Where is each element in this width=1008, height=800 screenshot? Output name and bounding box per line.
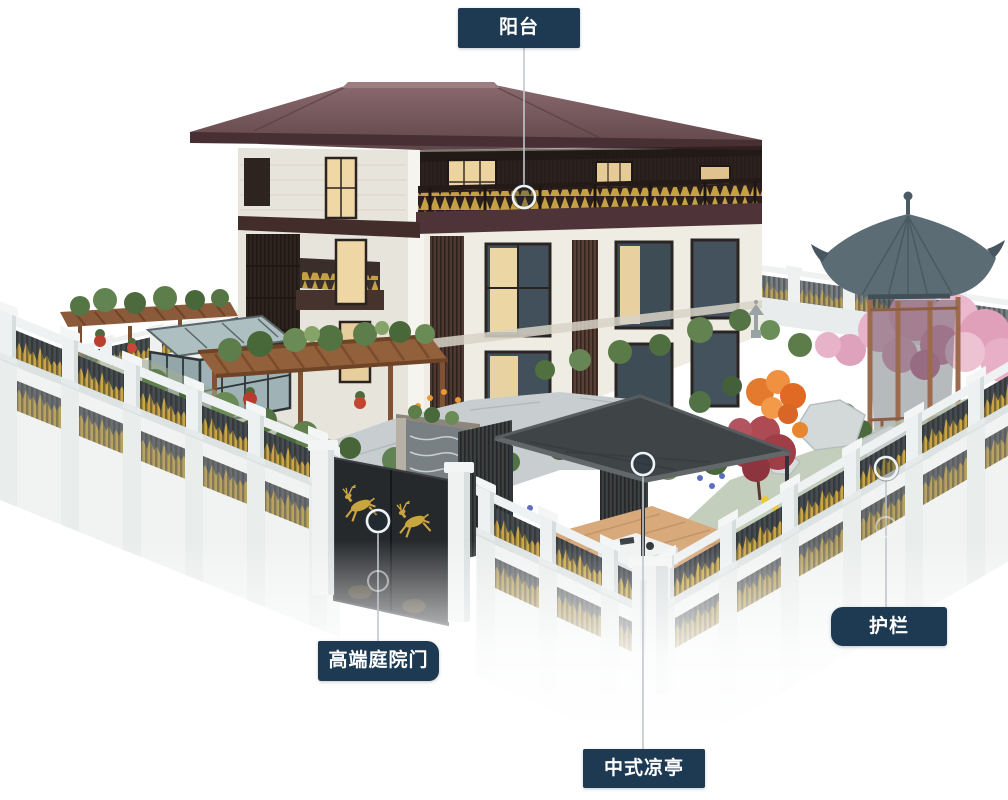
annotated-villa-render: 阳台 高端庭院门 中式凉亭 护栏 (0, 0, 1008, 800)
marker-pavilion[interactable] (630, 451, 656, 477)
callout-chinese-pavilion[interactable]: 中式凉亭 (583, 749, 705, 788)
callout-balcony[interactable]: 阳台 (458, 8, 580, 48)
marker-balcony[interactable] (511, 184, 537, 210)
callout-courtyard-gate-label: 高端庭院门 (328, 650, 428, 671)
callout-guardrail-label: 护栏 (869, 616, 909, 637)
callout-courtyard-gate[interactable]: 高端庭院门 (318, 641, 439, 681)
callout-chinese-pavilion-label: 中式凉亭 (604, 758, 684, 779)
marker-gate[interactable] (365, 508, 391, 534)
callout-guardrail[interactable]: 护栏 (831, 607, 947, 646)
callout-balcony-label: 阳台 (499, 17, 539, 38)
marker-guardrail[interactable] (873, 455, 899, 481)
annotation-overlay (0, 0, 1008, 800)
